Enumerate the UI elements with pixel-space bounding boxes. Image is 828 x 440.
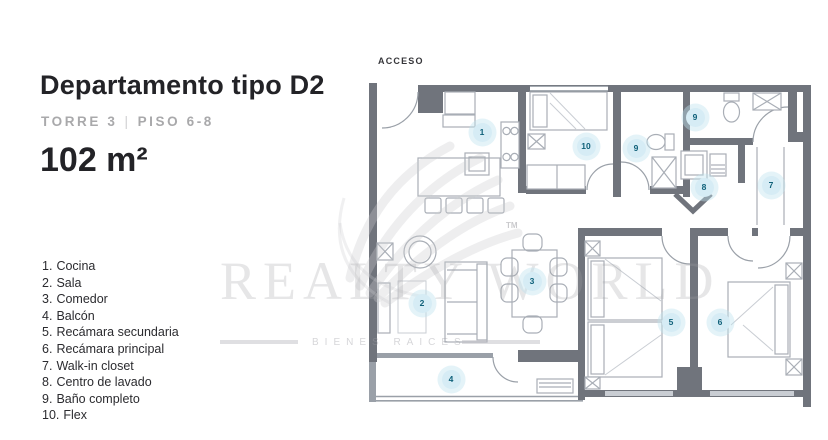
toilet2-bowl	[724, 102, 740, 122]
door-arc-flex	[587, 164, 613, 190]
legend-item-flex: 10.Flex	[42, 407, 179, 424]
room-marker-4-balcon: 4	[442, 370, 461, 389]
legend-item-recamara-secundaria: 5.Recámara secundaria	[42, 324, 179, 341]
wall-comedor-balcony	[518, 350, 580, 362]
wall-bath9b-pillar	[788, 132, 811, 142]
page-title: Departamento tipo D2	[40, 70, 325, 101]
room-marker-9-bano-a: 9	[627, 139, 646, 158]
door-arc-walkin	[758, 236, 790, 268]
tower-floor-subtitle: TORRE 3|PISO 6-8	[41, 114, 214, 129]
room-marker-5-recamara-secundaria: 5	[662, 313, 681, 332]
door-arc-bath9b	[753, 107, 788, 142]
floor-label: PISO 6-8	[138, 114, 214, 129]
legend-item-balcon: 4.Balcón	[42, 308, 179, 325]
entry-closet-wall	[418, 92, 443, 113]
watermark-tagline: BIENES RAICES	[312, 337, 467, 348]
balcony-bench	[537, 379, 573, 393]
flex-bed	[530, 92, 607, 130]
laundry-doors	[675, 194, 711, 211]
room-marker-7-walkin: 7	[762, 176, 781, 195]
area-value: 102 m²	[40, 141, 148, 180]
wall-hall-a	[578, 228, 662, 236]
room-marker-8-lavado: 8	[695, 178, 714, 197]
legend-item-cocina: 1.Cocina	[42, 258, 179, 275]
watermark-rule-left	[220, 340, 298, 344]
door-arc-entry	[382, 92, 418, 128]
dining-chair	[523, 316, 542, 333]
wall-laundry-right	[738, 143, 745, 183]
legend-item-recamara-principal: 6.Recámara principal	[42, 341, 179, 358]
room-marker-10-flex: 10	[577, 137, 596, 156]
legend-item-comedor: 3.Comedor	[42, 291, 179, 308]
toilet-tank	[665, 134, 674, 150]
subtitle-divider: |	[117, 114, 137, 129]
door-arc-bath9a	[621, 162, 649, 190]
watermark-rule-right	[462, 340, 540, 344]
legend-item-bano-completo: 9.Baño completo	[42, 391, 179, 408]
wall-bath9a-right	[683, 85, 690, 197]
bed5-b	[588, 322, 662, 377]
wall-flex-bath	[613, 85, 621, 197]
wall-hall-d	[790, 228, 811, 236]
legend-item-walkin-closet: 7.Walk-in closet	[42, 358, 179, 375]
fridge	[445, 92, 475, 114]
floorplan-brochure: { "header": { "title": "Departamento tip…	[0, 0, 828, 440]
room-legend: 1.Cocina 2.Sala 3.Comedor 4.Balcón 5.Rec…	[42, 258, 179, 424]
legend-item-sala: 2.Sala	[42, 275, 179, 292]
window-bedroom5	[605, 391, 673, 396]
room-marker-6-recamara-principal: 6	[711, 313, 730, 332]
toilet2-tank	[724, 93, 739, 101]
room-marker-2-sala: 2	[413, 294, 432, 313]
door-arc-balcony	[493, 357, 518, 382]
wall-bath9b-stub	[788, 88, 797, 132]
room-marker-1-cocina: 1	[473, 123, 492, 142]
wall-sala-balcony	[377, 353, 493, 358]
toilet-bowl	[647, 135, 665, 150]
window-bedroom6	[710, 391, 794, 396]
wall-hall-c	[752, 228, 758, 236]
room-marker-3-comedor: 3	[523, 272, 542, 291]
watermark-tm: TM	[506, 221, 518, 230]
door-arc-bedroom6	[728, 236, 753, 261]
kitchen-counter	[443, 115, 475, 127]
pillar-bedrooms	[677, 367, 702, 397]
tower-label: TORRE 3	[41, 114, 117, 129]
watermark-brand: REALTY WORLD	[220, 250, 721, 312]
room-marker-9-bano-b: 9	[686, 108, 705, 127]
legend-item-centro-de-lavado: 8.Centro de lavado	[42, 374, 179, 391]
